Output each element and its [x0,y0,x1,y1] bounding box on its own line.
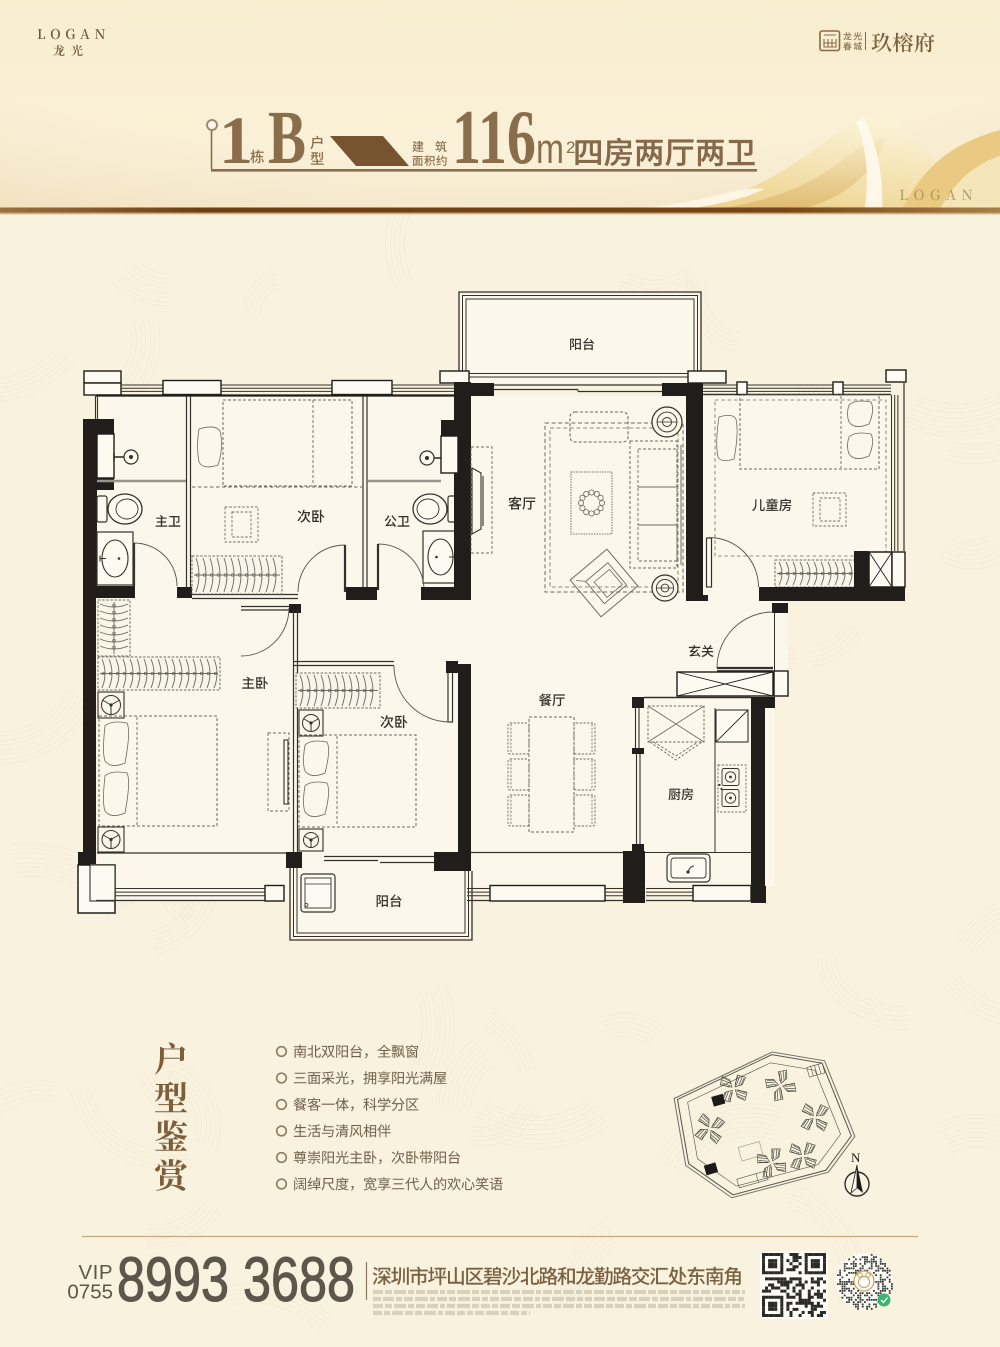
svg-text:2: 2 [566,138,575,157]
svg-text:1: 1 [219,102,253,178]
svg-text:0755: 0755 [67,1281,113,1304]
svg-text:N: N [851,1150,861,1165]
svg-text:116: 116 [452,94,536,180]
svg-text:8993 3688: 8993 3688 [117,1245,355,1315]
svg-text:m: m [536,125,564,172]
svg-text:B: B [268,96,306,180]
